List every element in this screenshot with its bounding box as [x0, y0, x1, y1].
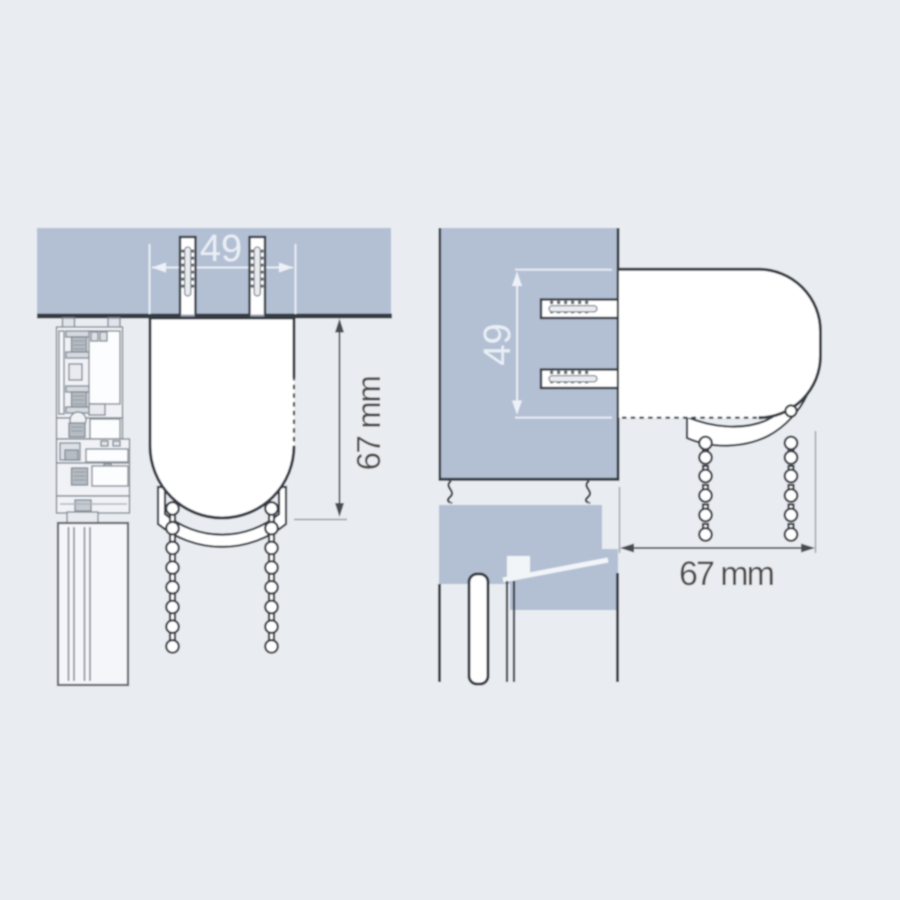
- svg-text:49: 49: [477, 323, 519, 365]
- svg-text:67 mm: 67 mm: [679, 555, 774, 593]
- svg-text:67 mm: 67 mm: [350, 377, 387, 471]
- svg-text:49: 49: [200, 228, 242, 270]
